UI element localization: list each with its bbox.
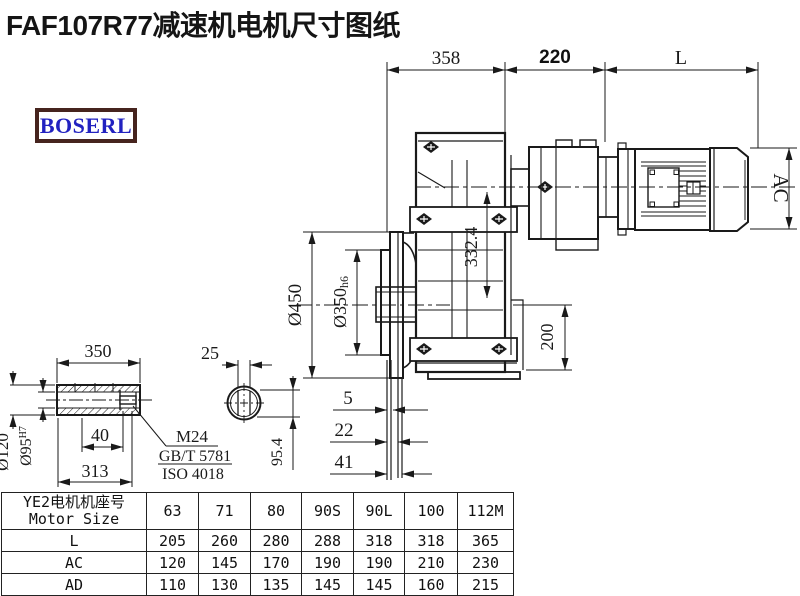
cell-L-63: 205 bbox=[147, 530, 199, 552]
cell-AC-100: 210 bbox=[405, 552, 458, 574]
row-label-L: L bbox=[2, 530, 147, 552]
cell-L-100: 318 bbox=[405, 530, 458, 552]
table-row-AC: AC 120 145 170 190 190 210 230 bbox=[2, 552, 514, 574]
dim-L-label: L bbox=[675, 47, 687, 69]
technical-drawing: 358 220 L Ø450 Ø350h6 332.4 200 bbox=[0, 40, 800, 496]
dim-5-label: 5 bbox=[343, 388, 353, 409]
table-header-cn: YE2电机机座号 bbox=[2, 494, 146, 511]
cell-AC-112M: 230 bbox=[458, 552, 514, 574]
dim-d95-label: Ø95H7 bbox=[18, 426, 35, 466]
row-label-AC: AC bbox=[2, 552, 147, 574]
col-header-80: 80 bbox=[251, 493, 302, 530]
table-header-row: YE2电机机座号 Motor Size 63 71 80 90S 90L 100… bbox=[2, 493, 514, 530]
col-header-90L: 90L bbox=[354, 493, 405, 530]
table-header-motor-size: YE2电机机座号 Motor Size bbox=[2, 493, 147, 530]
table-row-AD: AD 110 130 135 145 145 160 215 bbox=[2, 574, 514, 596]
col-header-112M: 112M bbox=[458, 493, 514, 530]
cell-AC-71: 145 bbox=[199, 552, 251, 574]
dim-d350-tolerance: h6 bbox=[337, 276, 351, 288]
dim-25-label: 25 bbox=[201, 343, 219, 363]
bolt-spec-label: M24 bbox=[176, 427, 209, 446]
dim-200-label: 200 bbox=[537, 324, 557, 351]
row-label-AD: AD bbox=[2, 574, 147, 596]
dim-d120-label: Ø120 bbox=[0, 433, 12, 471]
dim-220-label: 220 bbox=[539, 47, 571, 68]
cell-L-80: 280 bbox=[251, 530, 302, 552]
dim-d450-label: Ø450 bbox=[285, 284, 306, 326]
cell-L-112M: 365 bbox=[458, 530, 514, 552]
main-view-motor bbox=[635, 148, 748, 231]
cell-AD-100: 160 bbox=[405, 574, 458, 596]
dim-40-label: 40 bbox=[91, 425, 109, 445]
bolt-standard-iso-label: ISO 4018 bbox=[162, 466, 224, 483]
col-header-63: 63 bbox=[147, 493, 199, 530]
main-view-input-housing bbox=[511, 140, 637, 250]
dim-motor-diameter: AC bbox=[750, 148, 797, 229]
cell-AC-90S: 190 bbox=[302, 552, 354, 574]
bolt-standard-gb-label: GB/T 5781 bbox=[159, 448, 231, 465]
dim-350-label: 350 bbox=[85, 341, 112, 361]
dim-332-label: 332.4 bbox=[461, 227, 481, 268]
dim-358-label: 358 bbox=[432, 48, 461, 69]
dim-foot-height: 200 bbox=[513, 305, 572, 370]
col-header-90S: 90S bbox=[302, 493, 354, 530]
cell-L-90S: 288 bbox=[302, 530, 354, 552]
cell-AC-80: 170 bbox=[251, 552, 302, 574]
dim-d350-label: Ø350h6 bbox=[330, 276, 351, 328]
cell-AD-63: 110 bbox=[147, 574, 199, 596]
dim-flange-offsets: 5 22 41 bbox=[330, 388, 432, 474]
page: FAF107R77减速机电机尺寸图纸 BOSERL bbox=[0, 0, 800, 596]
cell-AC-90L: 190 bbox=[354, 552, 405, 574]
cell-AD-90L: 145 bbox=[354, 574, 405, 596]
dim-spigot: Ø350h6 bbox=[330, 250, 388, 355]
col-header-71: 71 bbox=[199, 493, 251, 530]
cell-L-71: 260 bbox=[199, 530, 251, 552]
table-row-L: L 205 260 280 288 318 318 365 bbox=[2, 530, 514, 552]
page-title: FAF107R77减速机电机尺寸图纸 bbox=[6, 4, 400, 44]
dim-22-label: 22 bbox=[335, 420, 354, 441]
table-header-en: Motor Size bbox=[2, 511, 146, 528]
cell-L-90L: 318 bbox=[354, 530, 405, 552]
col-header-100: 100 bbox=[405, 493, 458, 530]
cell-AD-112M: 215 bbox=[458, 574, 514, 596]
dim-313-label: 313 bbox=[82, 461, 109, 481]
cell-AD-80: 135 bbox=[251, 574, 302, 596]
motor-size-table: YE2电机机座号 Motor Size 63 71 80 90S 90L 100… bbox=[1, 492, 514, 596]
dim-95-4-label: 95.4 bbox=[269, 438, 286, 466]
cell-AD-71: 130 bbox=[199, 574, 251, 596]
cell-AD-90S: 145 bbox=[302, 574, 354, 596]
cell-AC-63: 120 bbox=[147, 552, 199, 574]
shaft-detail-view: 350 M24 GB/T 5781 ISO 4018 40 313 bbox=[0, 341, 232, 487]
dim-d95-tolerance: H7 bbox=[18, 426, 29, 438]
dim-AC-label: AC bbox=[769, 173, 793, 202]
dim-41-label: 41 bbox=[335, 452, 354, 473]
